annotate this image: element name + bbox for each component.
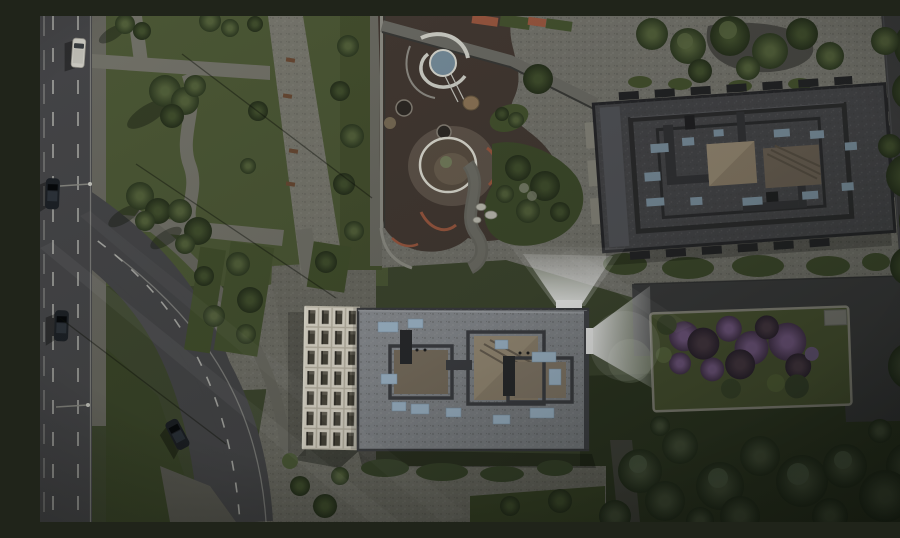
vignette-overlay	[40, 16, 900, 522]
aerial-render: Aerial dusk 3D render of a residential c…	[40, 16, 900, 522]
site-plan-canvas	[40, 16, 900, 522]
